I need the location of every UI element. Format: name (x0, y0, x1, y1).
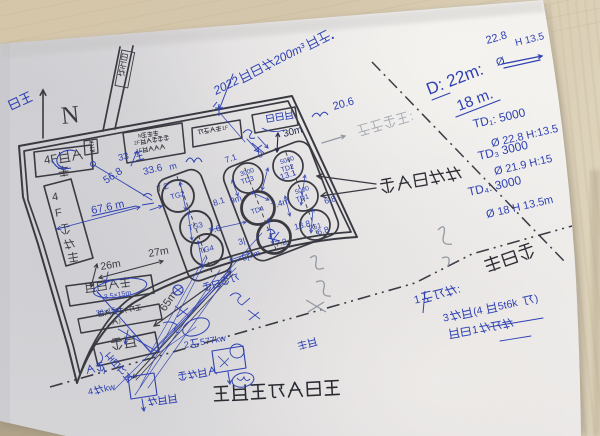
svg-text:4F: 4F (43, 153, 58, 167)
svg-text:N: N (60, 101, 81, 130)
svg-text:2F: 2F (134, 140, 141, 147)
svg-text:M: M (138, 133, 143, 140)
